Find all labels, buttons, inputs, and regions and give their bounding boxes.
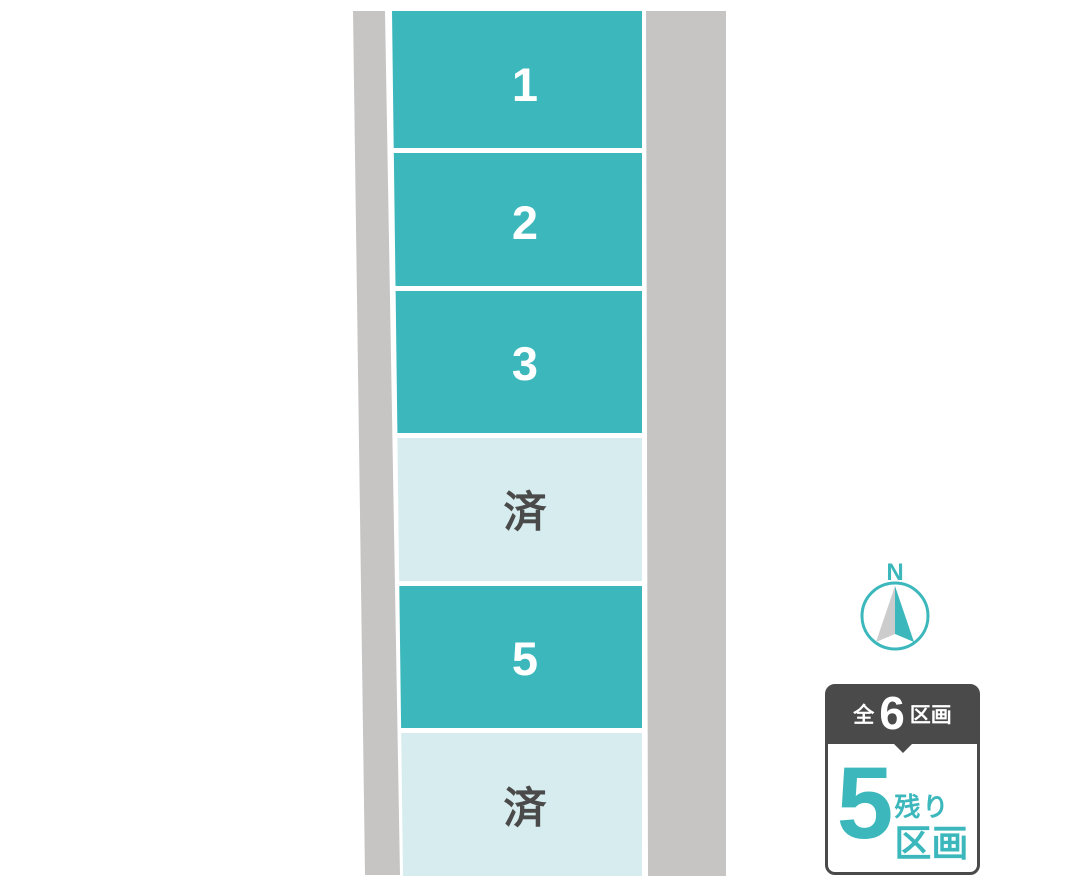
badge-total-prefix: 全 — [853, 705, 874, 726]
badge-remaining-label-bottom: 区画 — [894, 824, 968, 865]
lot-map-page: 1 2 3 済 5 済 N — [0, 0, 1080, 893]
road-left — [353, 11, 400, 875]
badge-remaining-count: 5 — [837, 757, 890, 851]
compass-needle-right-icon — [895, 586, 914, 642]
plot-4-label: 済 — [504, 489, 548, 537]
plot-3: 3 — [396, 291, 642, 433]
plot-4-sold: 済 — [397, 438, 642, 581]
badge-pointer-icon — [894, 744, 912, 753]
plot-2: 2 — [394, 153, 642, 286]
badge-total-suffix: 区画 — [910, 705, 952, 726]
badge-remaining-labels: 残り 区画 — [894, 793, 968, 864]
compass: N — [862, 559, 928, 649]
badge-total-row: 全 6 区画 — [827, 686, 978, 744]
plot-5: 5 — [399, 586, 642, 728]
plot-3-label: 3 — [512, 337, 538, 390]
badge-remaining-row: 5 残り 区画 — [828, 743, 977, 864]
plot-5-label: 5 — [512, 632, 538, 685]
availability-badge: 全 6 区画 5 残り 区画 — [825, 684, 980, 875]
plot-2-label: 2 — [512, 196, 538, 249]
plot-1-label: 1 — [512, 58, 538, 111]
plot-6-sold: 済 — [401, 733, 642, 876]
plot-6-label: 済 — [504, 785, 548, 833]
plot-1: 1 — [392, 11, 642, 148]
badge-total-count: 6 — [879, 690, 905, 736]
road-right — [646, 11, 726, 876]
badge-remaining-label-top: 残り — [894, 793, 968, 822]
compass-needle-left-icon — [876, 586, 895, 642]
